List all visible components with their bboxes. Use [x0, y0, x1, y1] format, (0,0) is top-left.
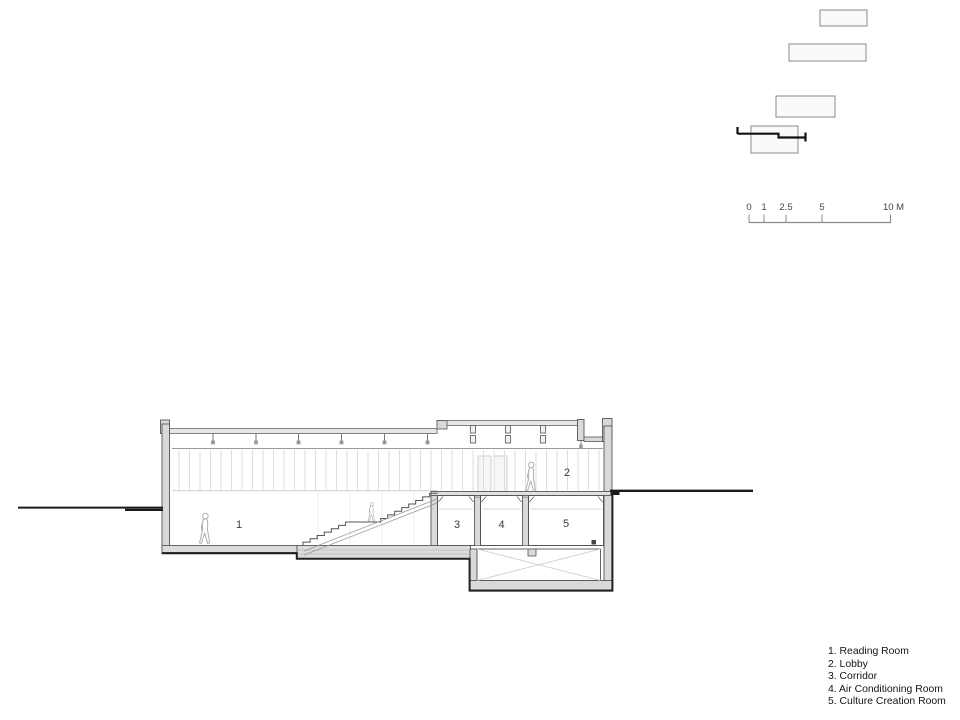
- room-label-1: 1: [236, 519, 242, 531]
- roof-hanger-icons: [470, 426, 582, 449]
- pit-ceiling-notch: [528, 549, 536, 556]
- scale-label-4: 10 M: [883, 202, 904, 213]
- key-plan-building-1: [820, 10, 867, 26]
- room-divider-wall: [523, 497, 529, 546]
- column-grid-lines: [318, 491, 414, 543]
- key-plan-building-2: [789, 44, 866, 61]
- room-label-3: 3: [454, 519, 460, 531]
- roof-step-cap: [437, 421, 447, 430]
- basement-rooms: [438, 496, 604, 546]
- building-section: 1 2 3 4 5: [161, 419, 613, 591]
- roof-recess-floor: [584, 437, 604, 442]
- scale-label-0: 0: [746, 202, 751, 213]
- room-divider-wall: [475, 497, 481, 546]
- high-roof-slab: [437, 421, 578, 426]
- legend-item: 5. Culture Creation Room: [828, 696, 946, 709]
- legend-item: 1. Reading Room: [828, 646, 946, 659]
- key-plan-building-3: [776, 96, 835, 117]
- low-roof-slab: [166, 429, 438, 434]
- lobby-floor-slab: [431, 492, 612, 496]
- room-label-5: 5: [563, 518, 569, 530]
- pit-bottom-slab: [470, 581, 612, 591]
- key-plan: [738, 10, 868, 153]
- section-drawing-sheet: 0 1 2.5 5 10 M: [0, 0, 960, 720]
- pendant-light-icons: [211, 434, 429, 445]
- foundation-pit: [470, 549, 612, 591]
- room-label-2: 2: [564, 467, 570, 479]
- room-label-4: 4: [498, 519, 504, 531]
- legend-item: 3. Corridor: [828, 671, 946, 684]
- ground-line-right: [610, 491, 753, 495]
- right-exterior-wall: [604, 426, 612, 590]
- person-icon: [368, 502, 374, 521]
- scale-bar-ticks: [749, 215, 891, 223]
- key-plan-building-4: [751, 126, 798, 153]
- person-icon: [200, 513, 210, 543]
- left-exterior-wall: [162, 424, 170, 554]
- scale-label-2: 2.5: [779, 202, 792, 213]
- wall-hatch-band: [179, 451, 601, 491]
- legend: 1. Reading Room 2. Lobby 3. Corridor 4. …: [828, 646, 946, 709]
- ground-line-left: [18, 508, 163, 510]
- legend-item: 4. Air Conditioning Room: [828, 684, 946, 697]
- ground-floor-slab-left: [162, 546, 297, 553]
- section-drawing-canvas: 0 1 2.5 5 10 M: [0, 0, 960, 720]
- stair-steps: [303, 493, 438, 545]
- small-square-marker: [592, 540, 597, 545]
- scale-label-3: 5: [819, 202, 824, 213]
- scale-bar: 0 1 2.5 5 10 M: [746, 202, 904, 223]
- legend-item: 2. Lobby: [828, 659, 946, 672]
- roof-recess-upstand: [578, 420, 585, 441]
- scale-label-1: 1: [761, 202, 766, 213]
